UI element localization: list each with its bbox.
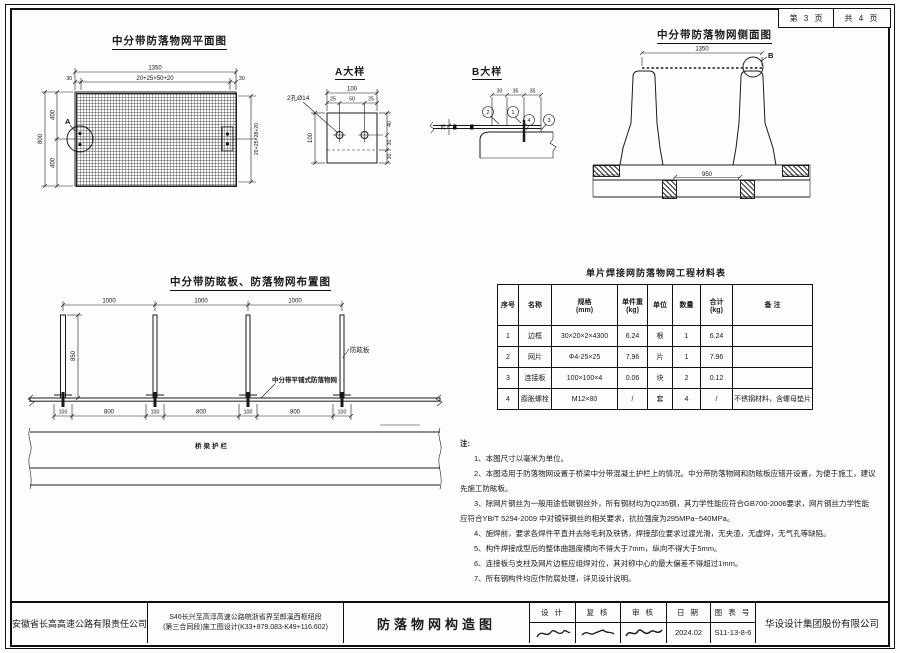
signature-review: [624, 626, 664, 640]
layout-view-drawing: 1000 1000 1000 850 100: [25, 292, 445, 502]
checker-label: 复 核: [576, 604, 620, 623]
cell: 3: [498, 368, 519, 389]
cell: 2: [673, 368, 701, 389]
title-block: 安徽省长高高速公路有限责任公司 S46长兴至高淳高速公路皖浙省界至郎溪西枢纽段 …: [12, 601, 888, 643]
callout-1: 1: [512, 110, 515, 116]
dim-b-3: 35: [530, 89, 536, 95]
dim-a-height: 100: [308, 132, 314, 143]
table-row: 4 膨胀螺栓 M12×80 / 套 4 / 不锈钢材料，含螺母垫片: [498, 389, 813, 410]
notes-section: 注: 1、本图尺寸以毫米为单位。 2、本图适用于防落物网设置于桥梁中分带混凝土护…: [460, 436, 876, 586]
reviewer-cell: 审 核: [621, 603, 667, 643]
note-1: 1、本图尺寸以毫米为单位。: [460, 451, 876, 466]
cell: [733, 347, 813, 368]
dim-half-bottom: 400: [51, 157, 57, 168]
detail-b-callout-circle: [743, 57, 763, 77]
dim-a-right: 25: [368, 97, 374, 103]
barrier-left: [620, 71, 663, 165]
dim-total-height: 800: [38, 133, 44, 144]
dim-total-width: 1350: [148, 66, 162, 72]
detail-b-ref: B: [768, 51, 774, 60]
dim-a-width: 100: [347, 87, 358, 93]
dim-anchor-1: 100: [59, 410, 68, 416]
material-table-title: 单片焊接网防落物网工程材料表: [497, 266, 815, 279]
table-row: 2 网片 Φ4-25×25 7.96 片 1 7.96: [498, 347, 813, 368]
design-company: 华设设计集团股份有限公司: [756, 603, 888, 643]
dim-net-width: 1350: [695, 47, 709, 53]
layout-view-title: 中分带防眩板、防落物网布置图: [170, 274, 331, 291]
dim-anchor-3: 100: [244, 410, 253, 416]
cell: [733, 368, 813, 389]
note-6: 6、连接板与支柱及网片边框应组焊对位，其对称中心的最大偏差不得超过1mm。: [460, 556, 876, 571]
dim-net-2: 800: [196, 410, 207, 416]
connection-plate-outline: [327, 113, 377, 163]
date-value: 2024.02: [667, 623, 710, 643]
dim-net-3: 800: [290, 410, 301, 416]
material-table: 序号 名称 规格 (mm) 单件重 (kg) 单位 数量 合计 (kg) 备 注…: [497, 284, 813, 410]
net-line: [30, 398, 440, 401]
notes-heading: 注:: [460, 436, 876, 451]
callout-3: 3: [548, 118, 551, 124]
cell: 片: [648, 347, 673, 368]
dim-b-side: 25: [441, 124, 447, 130]
cell: Φ4-25×25: [552, 347, 618, 368]
col-header-qty: 数量: [673, 285, 701, 326]
detail-b-drawing: 30 35 35 25 2 1 4 3: [425, 58, 585, 183]
cell: 块: [648, 368, 673, 389]
project-name: S46长兴至高淳高速公路皖浙省界至郎溪西枢纽段 (第三合同段)施工图设计(K33…: [148, 603, 344, 643]
date-cell: 日 期 2024.02: [667, 603, 711, 643]
dim-a-r-mid: 30: [387, 140, 393, 146]
plan-view-drawing: 1350 30 20+25×50+20 30 800 400 400 20+25…: [30, 48, 300, 213]
dim-spacing-3: 1000: [288, 299, 302, 305]
cell: 膨胀螺栓: [519, 389, 552, 410]
dim-a-r-bot: 30: [387, 154, 393, 160]
project-line-2: (第三合同段)施工图设计(K33+979.083-K49+116.602): [163, 623, 328, 633]
cell: 边框: [519, 326, 552, 347]
dim-b-2: 35: [513, 89, 519, 95]
signature-design: [534, 626, 572, 640]
designer-label: 设 计: [530, 604, 575, 623]
cell: 不锈钢材料，含螺母垫片: [733, 389, 813, 410]
side-view-drawing: 1350 B 950: [585, 22, 885, 227]
note-7: 7、所有钢构件均应作防腐处理，详见设计说明。: [460, 571, 876, 586]
cell: 7.96: [618, 347, 648, 368]
designer-signature: [530, 623, 575, 643]
dim-a-center: 50: [349, 97, 355, 103]
dim-a-left: 25: [330, 97, 336, 103]
cell: 100×100×4: [552, 368, 618, 389]
cell: 7.96: [701, 347, 733, 368]
barrier-right: [733, 71, 776, 165]
table-header-row: 序号 名称 规格 (mm) 单件重 (kg) 单位 数量 合计 (kg) 备 注: [498, 285, 813, 326]
cell: [733, 326, 813, 347]
cell: 0.12: [701, 368, 733, 389]
dim-edge-left: 30: [66, 76, 72, 82]
material-table-section: 单片焊接网防落物网工程材料表 序号 名称 规格 (mm) 单件重 (kg) 单位…: [497, 266, 815, 410]
dim-post-height: 850: [71, 350, 77, 361]
dim-spacing-1: 1000: [102, 299, 116, 305]
cell: 网片: [519, 347, 552, 368]
cell: 1: [498, 326, 519, 347]
cell: 1: [673, 326, 701, 347]
col-header-remark: 备 注: [733, 285, 813, 326]
cell: /: [618, 389, 648, 410]
detail-a-drawing: 100 25 50 25 100 40 30 30: [285, 58, 415, 183]
reviewer-label: 审 核: [621, 604, 666, 623]
cell: 1: [673, 347, 701, 368]
project-line-1: S46长兴至高淳高速公路皖浙省界至郎溪西枢纽段: [169, 613, 321, 623]
col-header-unit: 单位: [648, 285, 673, 326]
drawing-sheet: 第 3 页 共 4 页 中分带防落物网平面图 1350 30 20+25×50+…: [0, 0, 900, 653]
sheet-number-label: 图 表 号: [711, 604, 755, 623]
dim-mesh-width: 20+25×50+20: [136, 76, 174, 82]
cell: 套: [648, 389, 673, 410]
cell: 连接板: [519, 368, 552, 389]
checker-signature: [576, 623, 620, 643]
checker-cell: 复 核: [576, 603, 621, 643]
cell: 根: [648, 326, 673, 347]
barrier-top-outline: [480, 132, 553, 158]
drawing-title: 防落物网构造图: [344, 603, 530, 643]
dim-edge-right: 30: [239, 76, 245, 82]
sheet-number-value: S11-13-8-6: [711, 623, 755, 643]
cell: M12×80: [552, 389, 618, 410]
cell: 4: [498, 389, 519, 410]
dim-spacing-2: 1000: [194, 299, 208, 305]
glare-post-1: [61, 315, 66, 398]
callout-4: 4: [528, 118, 531, 124]
dim-mesh-height: 20+25×28+20: [254, 123, 260, 155]
glare-post-3: [246, 315, 250, 398]
col-header-name: 名称: [519, 285, 552, 326]
reviewer-signature: [621, 623, 666, 643]
dim-half-top: 400: [51, 109, 57, 120]
cell: /: [701, 389, 733, 410]
note-5: 5、构件焊接成型后的整体曲翘度横向不得大于7mm，纵向不得大于5mm。: [460, 541, 876, 556]
col-header-spec: 规格 (mm): [552, 285, 618, 326]
dim-a-r-top: 40: [387, 121, 393, 127]
table-row: 3 连接板 100×100×4 0.06 块 2 0.12: [498, 368, 813, 389]
owner-company: 安徽省长高高速公路有限责任公司: [12, 603, 148, 643]
col-header-seq: 序号: [498, 285, 519, 326]
callout-2: 2: [487, 110, 490, 116]
cell: 4: [673, 389, 701, 410]
note-2: 2、本图适用于防落物网设置于桥梁中分带混凝土护栏上的情况。中分带防落物网和防眩板…: [460, 466, 876, 496]
cell: 30×20×2×4300: [552, 326, 618, 347]
note-3: 3、除网片钢丝为一般用途低碳钢丝外，所有钢材均为Q235钢，其力学性能应符合GB…: [460, 496, 876, 526]
designer-cell: 设 计: [530, 603, 576, 643]
cell: 6.24: [618, 326, 648, 347]
signature-check: [579, 626, 617, 640]
detail-a-ref: A: [65, 117, 71, 126]
note-4: 4、施焊前，要求各焊件平直并去除毛刺及铁锈，焊接部位要求过渡光滑，无夹渣，无虚焊…: [460, 526, 876, 541]
sheet-number-cell: 图 表 号 S11-13-8-6: [711, 603, 756, 643]
date-label: 日 期: [667, 604, 710, 623]
dim-anchor-2: 100: [151, 410, 160, 416]
post-anchors: [54, 392, 351, 407]
dim-base-gap: 950: [702, 172, 713, 178]
cell: 6.24: [701, 326, 733, 347]
table-row: 1 边框 30×20×2×4300 6.24 根 1 6.24: [498, 326, 813, 347]
dim-anchor-4: 100: [338, 410, 347, 416]
col-header-unit-weight: 单件重 (kg): [618, 285, 648, 326]
dim-b-1: 30: [497, 89, 503, 95]
glare-post-2: [153, 315, 157, 398]
dim-net-1: 800: [104, 410, 115, 416]
cell: 2: [498, 347, 519, 368]
col-header-total: 合计 (kg): [701, 285, 733, 326]
cell: 0.06: [618, 368, 648, 389]
